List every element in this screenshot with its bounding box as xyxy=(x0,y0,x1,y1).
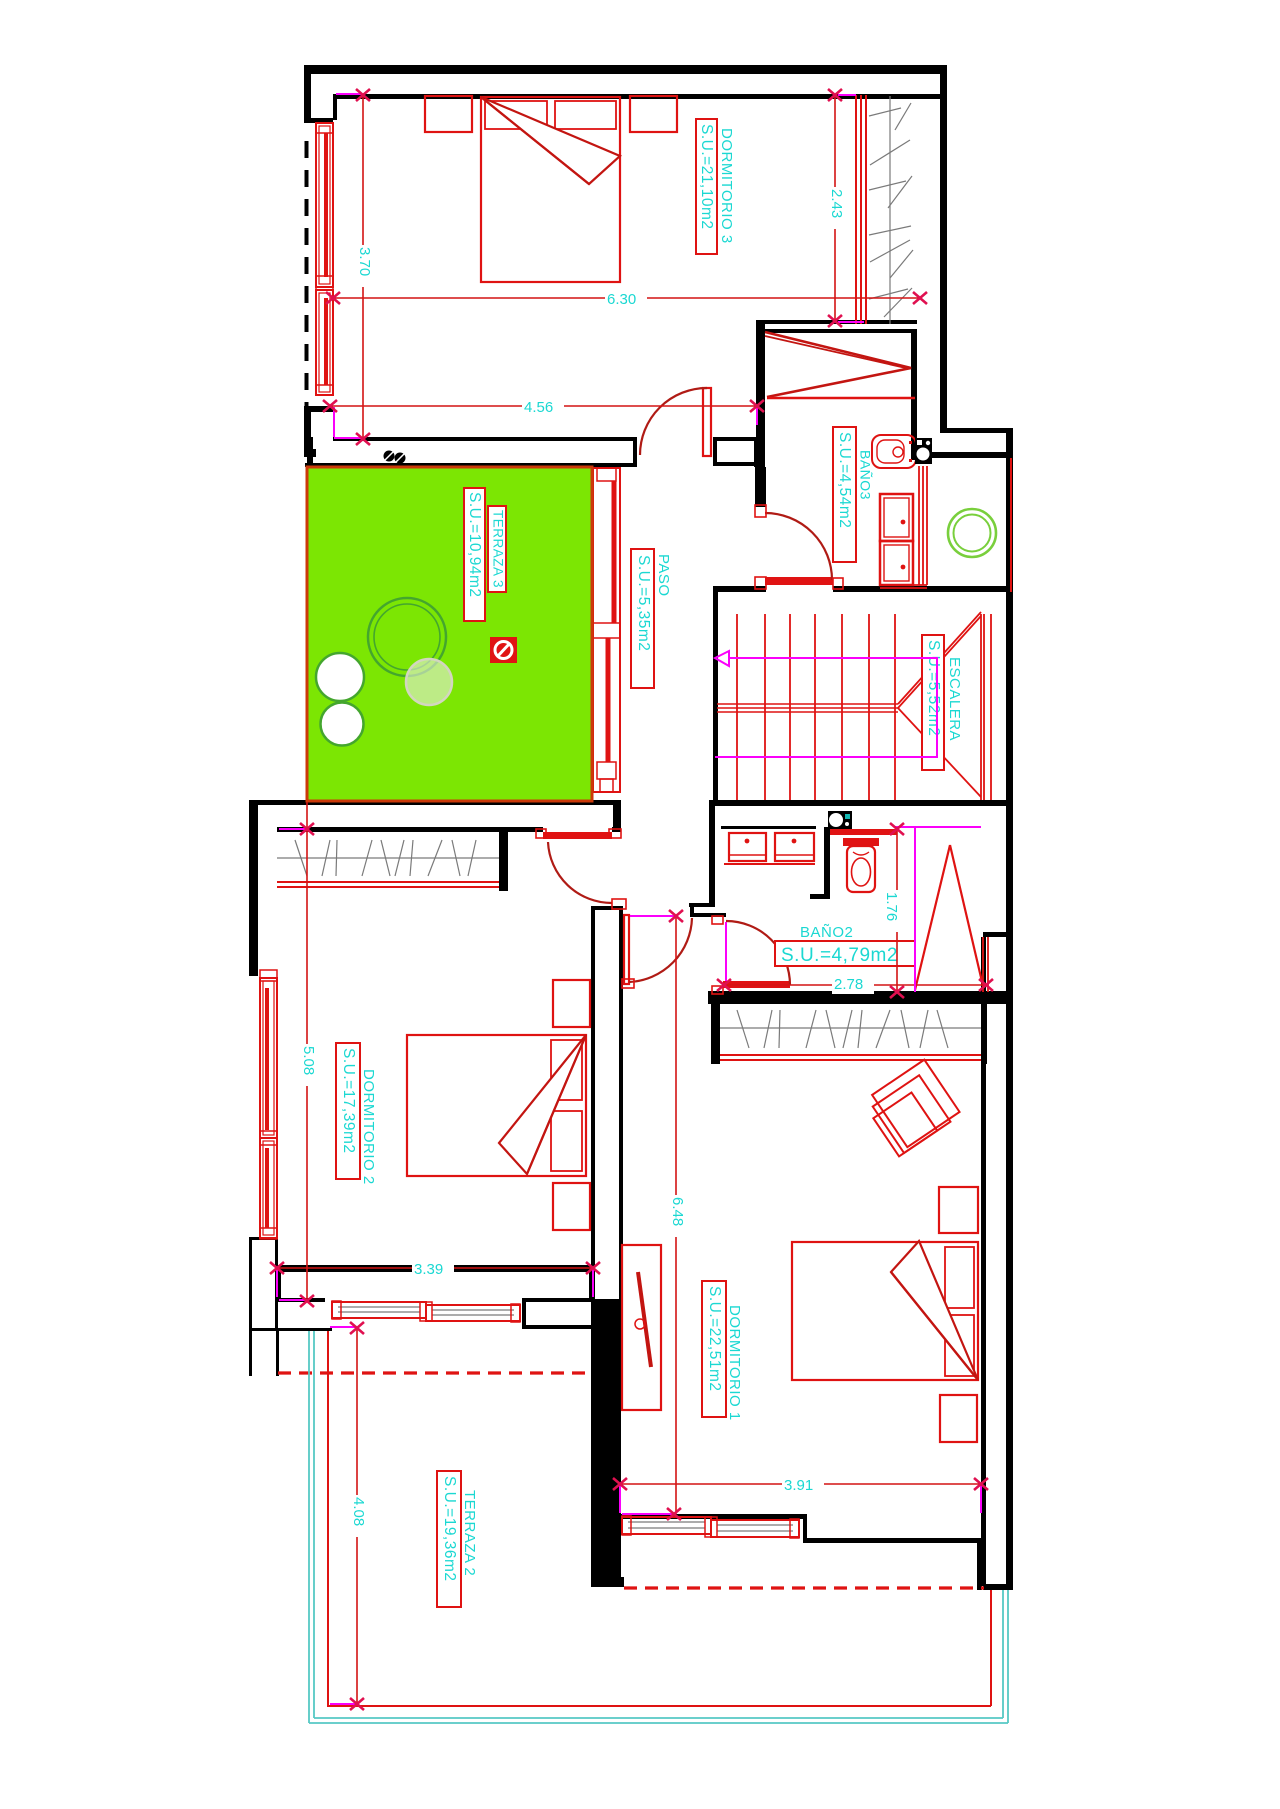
svg-text:1.76: 1.76 xyxy=(883,892,900,921)
svg-text:5.08: 5.08 xyxy=(300,1046,317,1075)
svg-text:BAÑO3: BAÑO3 xyxy=(857,450,873,500)
svg-text:DORMITORIO 3: DORMITORIO 3 xyxy=(718,128,735,244)
svg-text:6.30: 6.30 xyxy=(607,291,636,308)
svg-text:S.U.=5,35m2: S.U.=5,35m2 xyxy=(635,555,652,651)
svg-text:S.U.=21,10m2: S.U.=21,10m2 xyxy=(698,124,715,230)
svg-text:2.43: 2.43 xyxy=(828,189,845,218)
svg-text:S.U.=19,36m2: S.U.=19,36m2 xyxy=(441,1476,458,1582)
svg-text:6.48: 6.48 xyxy=(669,1197,686,1226)
svg-text:S.U.=22,51m2: S.U.=22,51m2 xyxy=(706,1286,723,1392)
svg-text:S.U.=5,52m2: S.U.=5,52m2 xyxy=(925,640,942,736)
svg-text:BAÑO2: BAÑO2 xyxy=(800,924,853,941)
svg-text:ESCALERA: ESCALERA xyxy=(946,657,963,741)
svg-text:S.U.=4,54m2: S.U.=4,54m2 xyxy=(836,432,853,528)
svg-text:4.08: 4.08 xyxy=(350,1497,367,1526)
svg-text:DORMITORIO 1: DORMITORIO 1 xyxy=(726,1305,743,1421)
svg-text:TERRAZA 2: TERRAZA 2 xyxy=(461,1490,478,1576)
svg-text:S.U.=10,94m2: S.U.=10,94m2 xyxy=(466,492,483,598)
svg-text:S.U.=17,39m2: S.U.=17,39m2 xyxy=(340,1048,357,1154)
svg-text:TERRAZA 3: TERRAZA 3 xyxy=(490,510,505,588)
svg-text:2.78: 2.78 xyxy=(834,976,863,993)
svg-text:PASO: PASO xyxy=(655,554,672,597)
svg-text:3.39: 3.39 xyxy=(414,1261,443,1278)
svg-text:3.91: 3.91 xyxy=(784,1477,813,1494)
svg-text:DORMITORIO 2: DORMITORIO 2 xyxy=(360,1069,377,1185)
svg-text:4.56: 4.56 xyxy=(524,399,553,416)
svg-text:3.70: 3.70 xyxy=(356,247,373,276)
svg-text:S.U.=4,79m2: S.U.=4,79m2 xyxy=(781,945,898,966)
